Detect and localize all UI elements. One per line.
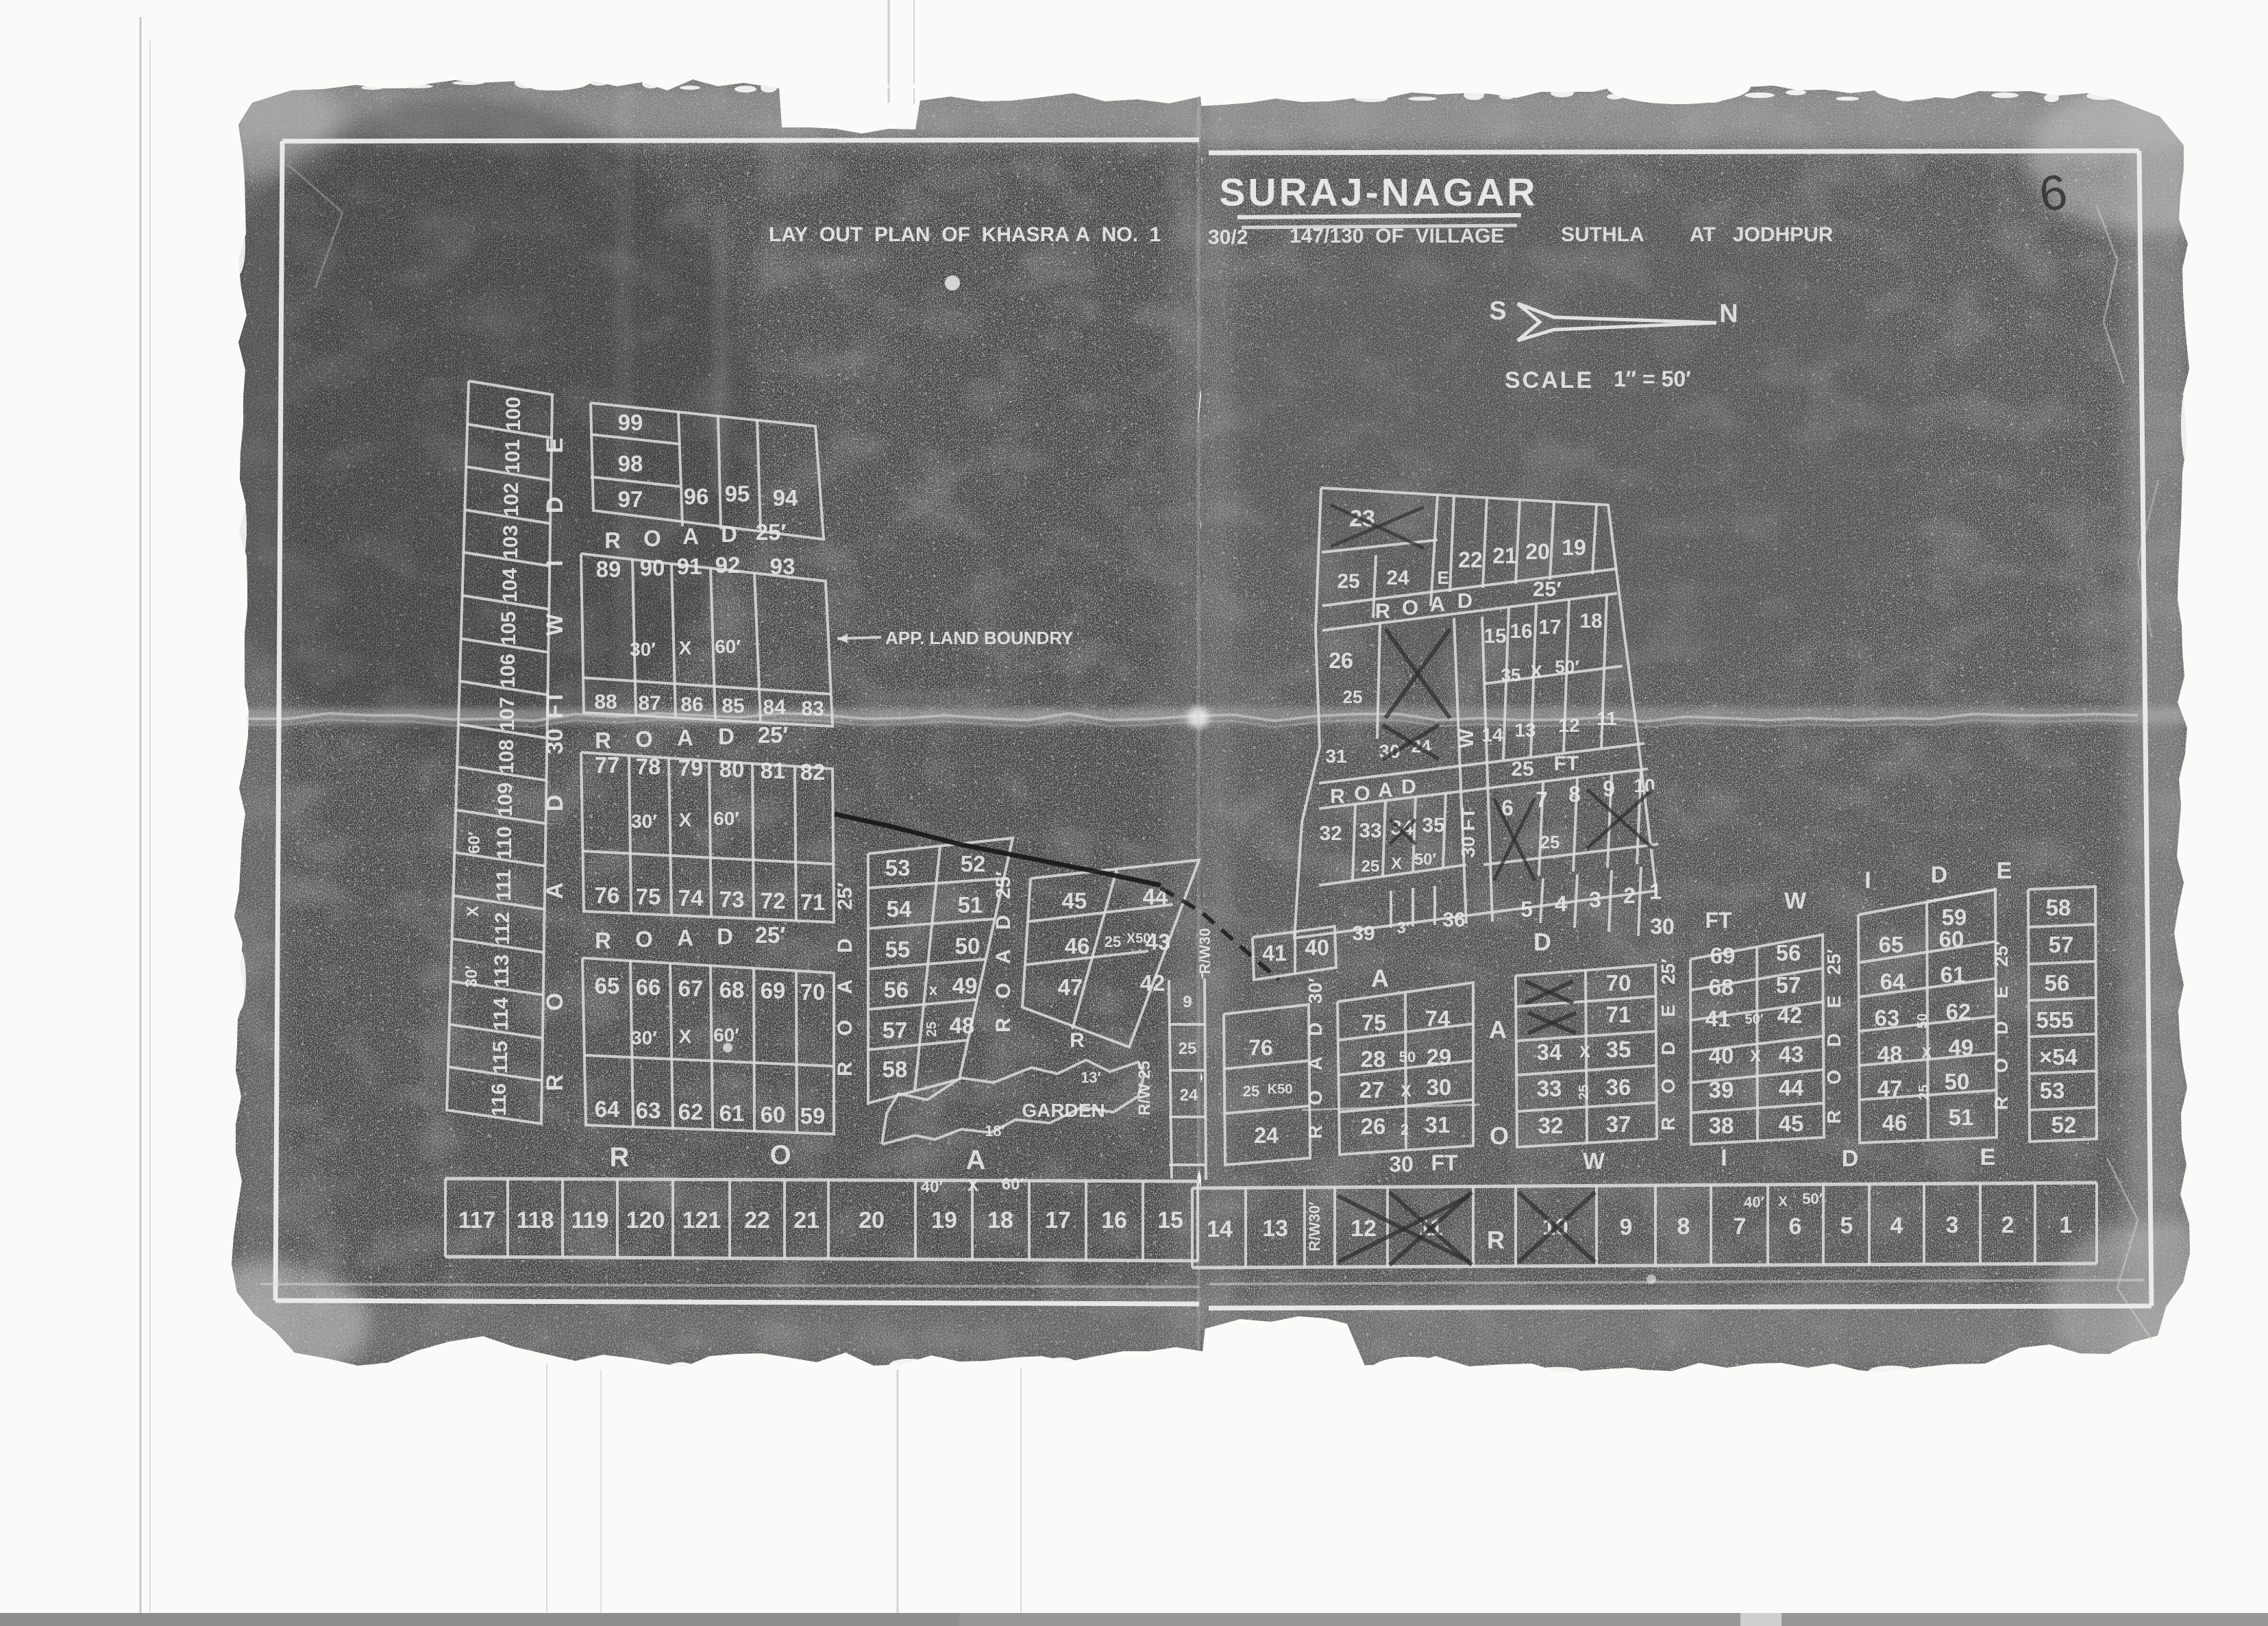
svg-text:57: 57 [883, 1018, 908, 1043]
svg-text:O: O [542, 993, 568, 1011]
svg-text:N: N [1719, 299, 1738, 328]
svg-text:60′: 60′ [1002, 1175, 1024, 1194]
svg-text:X: X [464, 906, 482, 917]
svg-text:X: X [1530, 661, 1542, 682]
svg-text:39: 39 [1352, 922, 1375, 945]
svg-text:A: A [992, 949, 1015, 964]
svg-text:97: 97 [618, 486, 643, 512]
svg-text:R: R [1375, 599, 1390, 623]
svg-text:98: 98 [618, 451, 643, 476]
svg-text:O: O [635, 726, 653, 752]
svg-text:64: 64 [595, 1096, 620, 1122]
svg-text:30: 30 [1650, 914, 1675, 939]
svg-text:73: 73 [719, 887, 745, 912]
svg-text:70: 70 [1606, 970, 1631, 996]
svg-text:14: 14 [1481, 724, 1503, 746]
svg-text:15: 15 [1157, 1207, 1183, 1233]
svg-text:18′: 18′ [985, 1122, 1005, 1140]
svg-text:71: 71 [800, 889, 826, 915]
svg-text:28: 28 [1361, 1046, 1386, 1072]
svg-text:A: A [677, 725, 693, 750]
svg-text:30′: 30′ [630, 639, 656, 660]
svg-text:25: 25 [1105, 933, 1121, 950]
svg-text:33: 33 [1537, 1076, 1562, 1101]
svg-text:69: 69 [1710, 943, 1736, 968]
svg-text:101: 101 [502, 439, 524, 473]
svg-text:100: 100 [502, 397, 525, 431]
svg-text:25: 25 [1243, 1083, 1259, 1100]
svg-text:7: 7 [1734, 1214, 1747, 1240]
svg-text:105: 105 [497, 611, 520, 645]
svg-text:3′: 3′ [1396, 919, 1409, 937]
svg-text:44: 44 [1779, 1075, 1804, 1100]
svg-text:12: 12 [1558, 715, 1579, 736]
svg-text:62: 62 [1946, 999, 1971, 1024]
svg-text:D: D [717, 924, 733, 949]
svg-text:O: O [1990, 1058, 2012, 1073]
svg-text:O: O [1490, 1122, 1509, 1150]
svg-text:R: R [1657, 1117, 1679, 1131]
svg-text:X: X [679, 637, 692, 658]
svg-text:53: 53 [885, 855, 911, 880]
svg-text:FT: FT [542, 690, 568, 719]
svg-text:60: 60 [761, 1102, 786, 1127]
svg-text:1″ = 50′: 1″ = 50′ [1614, 367, 1691, 391]
svg-text:108: 108 [495, 739, 518, 774]
svg-text:20: 20 [1525, 539, 1550, 564]
svg-text:49: 49 [952, 973, 978, 998]
svg-text:O: O [1305, 1090, 1326, 1105]
svg-text:1: 1 [1649, 879, 1662, 904]
svg-text:78: 78 [636, 754, 661, 779]
svg-text:O: O [992, 983, 1015, 998]
svg-text:E: E [1657, 1005, 1679, 1018]
svg-text:A: A [966, 1145, 986, 1175]
svg-text:3: 3 [1946, 1212, 1959, 1238]
svg-text:109: 109 [494, 783, 517, 817]
svg-text:O: O [643, 526, 661, 551]
svg-text:D: D [1457, 589, 1472, 613]
svg-text:118: 118 [517, 1207, 554, 1233]
svg-text:106: 106 [497, 654, 519, 688]
svg-text:18: 18 [987, 1207, 1013, 1233]
svg-text:8: 8 [1677, 1214, 1690, 1240]
svg-text:107: 107 [496, 697, 519, 731]
svg-text:56: 56 [1776, 940, 1801, 965]
svg-text:D: D [542, 795, 568, 812]
svg-text:1: 1 [2060, 1212, 2073, 1238]
svg-text:R: R [610, 1142, 630, 1172]
svg-text:41: 41 [1705, 1006, 1731, 1031]
svg-text:32: 32 [1319, 822, 1342, 845]
svg-text:83: 83 [801, 698, 824, 720]
svg-text:5: 5 [1840, 1213, 1853, 1239]
svg-text:61: 61 [719, 1100, 745, 1126]
svg-text:93: 93 [770, 554, 796, 579]
svg-text:57: 57 [2049, 932, 2074, 957]
svg-text:52: 52 [2051, 1112, 2077, 1137]
svg-text:42: 42 [1140, 970, 1166, 996]
svg-text:60′: 60′ [465, 832, 484, 854]
svg-text:X: X [967, 1177, 978, 1195]
svg-text:20: 20 [859, 1207, 885, 1233]
svg-text:5: 5 [1520, 897, 1533, 922]
svg-text:25: 25 [1577, 1085, 1592, 1100]
svg-text:21: 21 [793, 1207, 819, 1233]
svg-text:112: 112 [491, 912, 514, 945]
svg-text:R: R [1305, 1125, 1326, 1139]
svg-text:SCALE: SCALE [1505, 367, 1594, 393]
svg-text:69: 69 [761, 978, 786, 1003]
svg-text:53: 53 [2040, 1078, 2065, 1103]
svg-text:52: 52 [961, 851, 986, 876]
svg-text:34: 34 [1537, 1039, 1562, 1065]
svg-text:X: X [1579, 1043, 1590, 1061]
svg-text:R: R [595, 728, 611, 753]
svg-text:30: 30 [1389, 1152, 1414, 1177]
svg-text:25: 25 [1337, 570, 1359, 593]
svg-text:4: 4 [1555, 891, 1567, 916]
svg-text:555: 555 [2036, 1007, 2073, 1033]
svg-text:30/2: 30/2 [1208, 226, 1248, 249]
svg-text:80: 80 [719, 756, 745, 782]
svg-text:x: x [929, 981, 938, 998]
svg-text:61: 61 [1940, 962, 1966, 987]
svg-text:R: R [1330, 785, 1345, 808]
svg-text:48: 48 [950, 1013, 975, 1038]
svg-text:R: R [834, 1061, 856, 1076]
svg-text:26: 26 [1361, 1113, 1386, 1139]
svg-text:O: O [1402, 595, 1418, 619]
svg-text:3: 3 [1589, 887, 1601, 912]
svg-text:114: 114 [490, 997, 513, 1031]
svg-text:R: R [604, 528, 621, 553]
svg-text:W: W [1583, 1148, 1605, 1174]
svg-text:47: 47 [1058, 974, 1083, 1000]
svg-text:46: 46 [1882, 1110, 1908, 1135]
svg-text:79: 79 [678, 755, 704, 780]
svg-text:25: 25 [1179, 1039, 1197, 1058]
svg-text:117: 117 [458, 1207, 496, 1233]
svg-text:O: O [1823, 1070, 1845, 1085]
svg-text:50: 50 [1915, 1013, 1930, 1028]
svg-text:46: 46 [1065, 933, 1090, 959]
svg-text:E: E [1437, 567, 1449, 588]
svg-text:58: 58 [883, 1057, 908, 1082]
svg-text:33: 33 [1359, 820, 1381, 842]
svg-text:68: 68 [719, 977, 745, 1002]
svg-text:E: E [1997, 858, 2012, 884]
svg-text:30′: 30′ [631, 811, 657, 832]
svg-text:D: D [721, 521, 737, 547]
svg-text:60: 60 [1939, 926, 1964, 952]
svg-text:15: 15 [1483, 625, 1506, 648]
svg-text:22: 22 [744, 1207, 770, 1233]
svg-text:A: A [1371, 964, 1389, 992]
svg-text:R: R [1990, 1096, 2012, 1110]
svg-text:75: 75 [636, 884, 661, 909]
svg-text:84: 84 [763, 696, 786, 719]
svg-text:O: O [635, 926, 653, 952]
svg-text:96: 96 [684, 484, 709, 509]
svg-text:D: D [1533, 928, 1551, 956]
svg-text:8: 8 [1568, 782, 1581, 806]
svg-text:D: D [542, 497, 568, 514]
svg-text:LAY OUT PLAN OF KHASRA A: LAY OUT PLAN OF KHASRA A NO. 1 [769, 223, 1161, 246]
svg-text:FT: FT [1705, 908, 1732, 933]
svg-text:D: D [1931, 862, 1948, 888]
svg-text:121: 121 [682, 1207, 722, 1233]
svg-text:63: 63 [1875, 1005, 1900, 1031]
svg-text:30′: 30′ [463, 965, 481, 988]
svg-text:D: D [718, 724, 735, 749]
svg-text:35: 35 [1501, 665, 1521, 685]
svg-text:A: A [542, 883, 568, 900]
svg-text:29: 29 [1427, 1044, 1452, 1070]
svg-text:68: 68 [1709, 974, 1734, 1000]
svg-text:R: R [1070, 1029, 1085, 1052]
svg-text:99: 99 [618, 410, 643, 435]
svg-text:GARDEN: GARDEN [1022, 1100, 1105, 1121]
svg-text:R/W30: R/W30 [1196, 928, 1213, 974]
svg-text:86: 86 [680, 693, 703, 716]
svg-text:13: 13 [1262, 1216, 1288, 1242]
svg-text:X: X [1778, 1194, 1788, 1209]
svg-text:14: 14 [1207, 1216, 1233, 1242]
svg-text:89: 89 [596, 556, 621, 582]
svg-text:120: 120 [626, 1207, 665, 1233]
svg-text:50: 50 [1399, 1048, 1416, 1065]
svg-text:R: R [542, 1074, 568, 1092]
svg-text:25′: 25′ [1533, 577, 1562, 601]
svg-text:30′: 30′ [631, 1027, 657, 1048]
svg-text:30: 30 [542, 728, 568, 754]
svg-text:60′: 60′ [713, 1024, 739, 1046]
svg-text:A: A [677, 925, 693, 950]
svg-text:25: 25 [1343, 687, 1363, 707]
svg-text:18: 18 [1579, 610, 1602, 632]
svg-text:50: 50 [1945, 1069, 1970, 1094]
svg-text:36: 36 [1606, 1074, 1631, 1100]
svg-text:87: 87 [638, 692, 661, 715]
svg-text:D: D [1842, 1146, 1859, 1172]
svg-text:SUTHLA: SUTHLA [1561, 223, 1644, 246]
svg-text:113: 113 [491, 954, 513, 987]
svg-text:51: 51 [1949, 1105, 1974, 1130]
svg-text:25′: 25′ [1823, 949, 1845, 975]
svg-text:9: 9 [1620, 1214, 1633, 1240]
svg-text:W: W [1455, 728, 1478, 748]
svg-text:A: A [682, 523, 699, 549]
svg-text:92: 92 [715, 552, 741, 578]
svg-text:26: 26 [1329, 648, 1353, 673]
svg-text:34: 34 [1390, 817, 1414, 839]
svg-text:35: 35 [1606, 1037, 1631, 1062]
svg-text:62: 62 [678, 1099, 704, 1124]
svg-text:25′: 25′ [1990, 941, 2012, 967]
svg-text:111: 111 [493, 870, 515, 902]
svg-text:38: 38 [1709, 1113, 1734, 1138]
svg-text:2: 2 [1401, 1121, 1409, 1138]
svg-text:55: 55 [885, 937, 911, 962]
svg-text:95: 95 [725, 481, 750, 506]
svg-text:71: 71 [1606, 1002, 1631, 1027]
svg-text:25′: 25′ [1657, 959, 1679, 985]
svg-text:27: 27 [1359, 1077, 1385, 1103]
svg-text:54: 54 [887, 896, 912, 922]
svg-text:16: 16 [1509, 620, 1532, 643]
svg-text:17: 17 [1045, 1207, 1071, 1233]
svg-text:60′: 60′ [713, 808, 739, 829]
svg-text:×54: ×54 [2039, 1044, 2078, 1070]
svg-text:41: 41 [1262, 941, 1287, 965]
svg-text:66: 66 [636, 974, 661, 1000]
svg-text:88: 88 [594, 691, 617, 713]
svg-text:24: 24 [1254, 1123, 1279, 1148]
svg-text:45: 45 [1779, 1111, 1804, 1136]
svg-text:W: W [1784, 888, 1807, 914]
svg-text:FT: FT [1431, 1150, 1458, 1175]
svg-text:E: E [1980, 1144, 1996, 1170]
svg-text:X: X [679, 1026, 692, 1047]
svg-text:24: 24 [1386, 567, 1409, 589]
svg-text:65: 65 [595, 973, 620, 998]
svg-text:103: 103 [500, 525, 522, 559]
svg-text:37: 37 [1606, 1111, 1631, 1137]
svg-text:2: 2 [1623, 883, 1636, 908]
svg-text:I: I [542, 560, 568, 566]
svg-text:K50: K50 [1268, 1082, 1293, 1097]
svg-text:39: 39 [1709, 1077, 1734, 1103]
svg-text:25: 25 [1540, 832, 1560, 852]
svg-text:6: 6 [1789, 1214, 1802, 1240]
svg-text:25′: 25′ [992, 872, 1015, 900]
svg-text:13′: 13′ [1081, 1069, 1101, 1086]
svg-text:S: S [1489, 297, 1506, 325]
svg-text:50: 50 [955, 933, 981, 959]
svg-text:77: 77 [595, 752, 620, 778]
svg-text:25: 25 [924, 1022, 939, 1037]
svg-text:81: 81 [761, 758, 786, 783]
svg-text:57: 57 [1776, 972, 1801, 998]
svg-text:D: D [1823, 1033, 1845, 1047]
svg-text:O: O [1657, 1079, 1679, 1094]
svg-text:E: E [1823, 996, 1845, 1009]
svg-text:17: 17 [1538, 616, 1561, 639]
svg-text:16: 16 [1101, 1207, 1127, 1233]
svg-text:47: 47 [1877, 1076, 1903, 1101]
svg-text:I: I [1721, 1145, 1727, 1171]
svg-text:42: 42 [1777, 1002, 1803, 1028]
svg-text:50′: 50′ [1745, 1012, 1763, 1027]
svg-text:D: D [992, 915, 1015, 930]
svg-text:94: 94 [773, 485, 798, 510]
svg-text:60′: 60′ [715, 636, 741, 657]
svg-text:116: 116 [488, 1083, 510, 1116]
svg-text:D: D [1990, 1021, 2012, 1035]
svg-text:82: 82 [800, 759, 826, 785]
svg-text:7: 7 [1536, 787, 1548, 812]
svg-text:R: R [595, 928, 611, 953]
svg-text:22: 22 [1458, 547, 1483, 572]
svg-text:X: X [1750, 1047, 1761, 1065]
svg-text:147/130 OF VILLAGE: 147/130 OF VILLAGE [1290, 225, 1504, 247]
svg-text:104: 104 [499, 568, 521, 602]
svg-text:40: 40 [1709, 1043, 1734, 1068]
svg-text:R: R [1487, 1226, 1505, 1254]
svg-text:9: 9 [1603, 776, 1615, 801]
svg-text:E: E [1990, 986, 2012, 999]
svg-text:25: 25 [1916, 1085, 1932, 1100]
svg-text:APP. LAND BOUNDRY: APP. LAND BOUNDRY [885, 628, 1073, 648]
svg-text:X50′: X50′ [1126, 931, 1155, 946]
svg-text:X: X [679, 809, 692, 830]
svg-text:43: 43 [1779, 1042, 1804, 1067]
svg-text:D: D [1657, 1042, 1679, 1055]
svg-text:25: 25 [1511, 758, 1533, 780]
svg-text:64: 64 [1880, 969, 1906, 994]
svg-text:30 FT: 30 FT [1457, 807, 1479, 857]
svg-text:O: O [1354, 783, 1370, 805]
svg-text:76: 76 [1248, 1035, 1273, 1060]
svg-text:A: A [834, 979, 856, 994]
svg-text:X: X [1391, 854, 1402, 873]
svg-text:70: 70 [800, 979, 826, 1005]
svg-text:D: D [1401, 776, 1416, 798]
svg-text:25′: 25′ [834, 883, 856, 911]
svg-text:40′: 40′ [1744, 1194, 1764, 1211]
svg-text:19: 19 [1562, 535, 1586, 560]
svg-text:50′: 50′ [1802, 1190, 1823, 1207]
svg-text:72: 72 [761, 888, 786, 913]
svg-text:21: 21 [1492, 543, 1517, 568]
svg-text:102: 102 [500, 482, 523, 517]
svg-text:45: 45 [1062, 888, 1087, 913]
svg-text:30: 30 [1427, 1074, 1452, 1100]
svg-text:30′: 30′ [1305, 978, 1326, 1004]
svg-text:58: 58 [2046, 895, 2071, 920]
svg-text:9: 9 [1183, 993, 1192, 1011]
svg-text:40′: 40′ [921, 1178, 944, 1196]
svg-text:51: 51 [958, 892, 983, 917]
svg-text:56: 56 [2045, 970, 2070, 996]
svg-text:A: A [1489, 1015, 1507, 1044]
svg-text:10: 10 [1634, 775, 1655, 796]
svg-text:25: 25 [1361, 857, 1380, 876]
svg-text:R: R [992, 1018, 1015, 1033]
svg-text:63: 63 [636, 1098, 661, 1123]
svg-text:67: 67 [678, 976, 704, 1001]
svg-text:19: 19 [931, 1207, 957, 1233]
svg-text:25′: 25′ [755, 922, 786, 948]
svg-text:12: 12 [1351, 1216, 1377, 1242]
svg-text:11: 11 [1597, 708, 1617, 729]
svg-text:24: 24 [1180, 1086, 1198, 1105]
svg-text:D: D [1305, 1022, 1326, 1036]
svg-text:115: 115 [489, 1041, 512, 1074]
svg-text:13: 13 [1514, 719, 1536, 741]
svg-text:2: 2 [2001, 1212, 2014, 1238]
svg-text:74: 74 [678, 885, 704, 911]
svg-text:110: 110 [493, 826, 516, 859]
svg-text:56: 56 [884, 977, 909, 1002]
svg-text:50′: 50′ [1555, 656, 1579, 677]
svg-text:FT: FT [1554, 752, 1579, 775]
svg-text:X: X [1401, 1082, 1412, 1100]
svg-text:90: 90 [640, 555, 665, 580]
svg-text:R/W 25: R/W 25 [1135, 1061, 1154, 1116]
svg-text:35: 35 [1422, 814, 1444, 837]
